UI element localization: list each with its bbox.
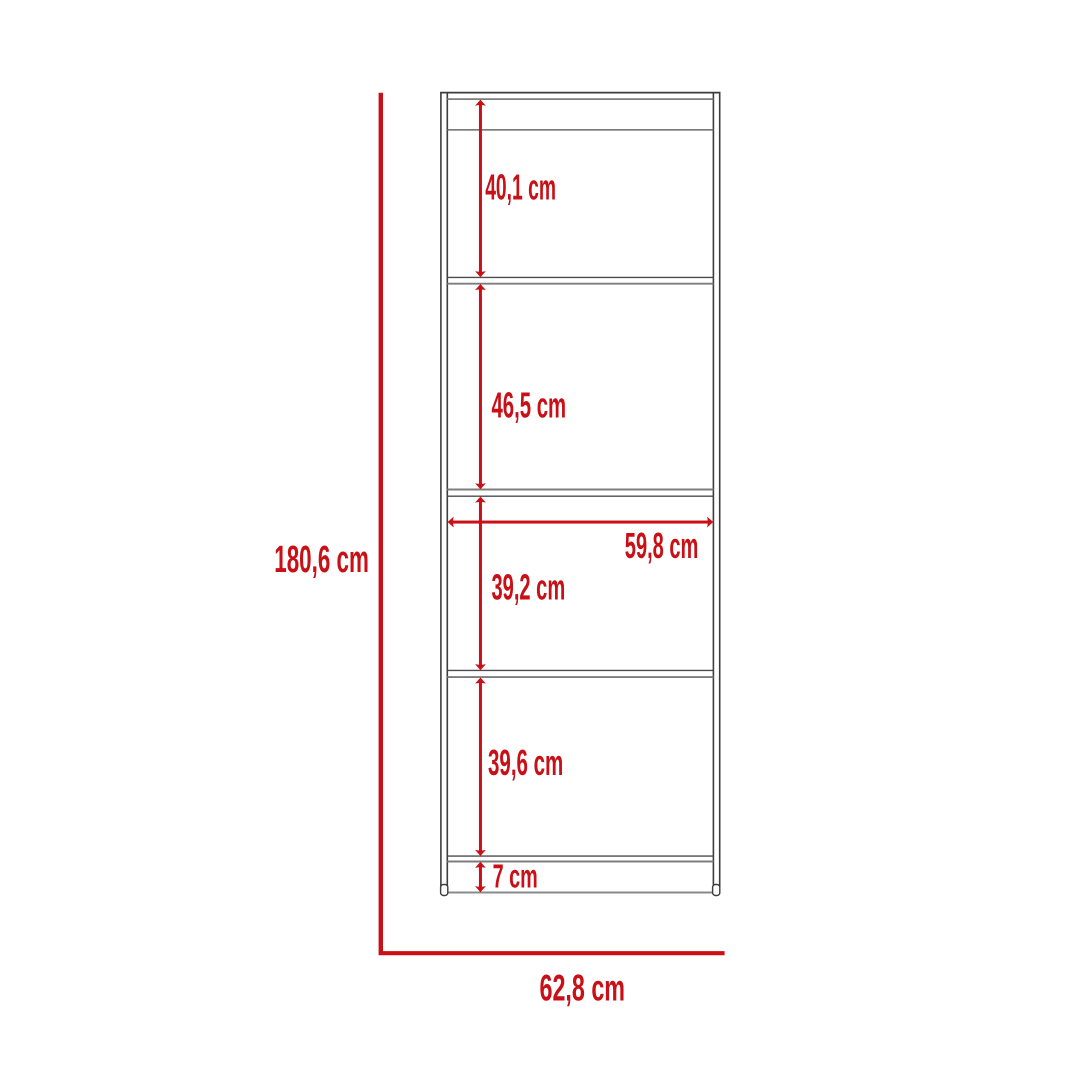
- svg-text:40,1 cm: 40,1 cm: [485, 168, 556, 208]
- svg-text:59,8 cm: 59,8 cm: [625, 527, 699, 567]
- svg-text:46,5 cm: 46,5 cm: [492, 387, 567, 426]
- svg-text:39,6 cm: 39,6 cm: [488, 743, 563, 784]
- svg-text:7 cm: 7 cm: [493, 857, 538, 895]
- svg-text:180,6 cm: 180,6 cm: [274, 538, 369, 581]
- svg-text:62,8 cm: 62,8 cm: [540, 967, 626, 1009]
- svg-text:39,2 cm: 39,2 cm: [492, 569, 566, 609]
